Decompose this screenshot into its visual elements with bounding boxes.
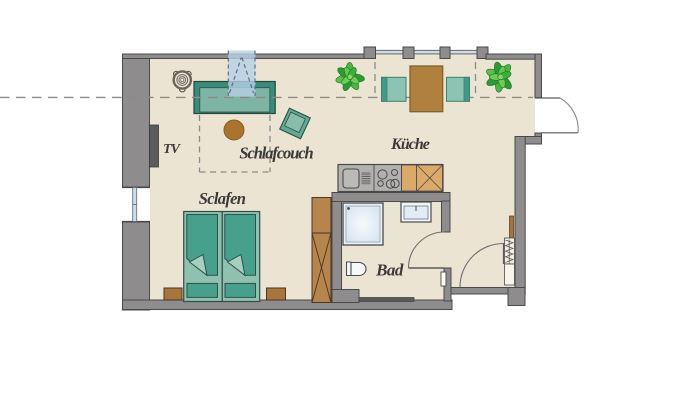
svg-text:Küche: Küche — [390, 136, 430, 153]
svg-text:Schlafcouch: Schlafcouch — [239, 144, 313, 163]
svg-text:Sclafen: Sclafen — [199, 189, 246, 208]
svg-text:Bad: Bad — [375, 261, 404, 280]
svg-text:TV: TV — [163, 142, 182, 157]
